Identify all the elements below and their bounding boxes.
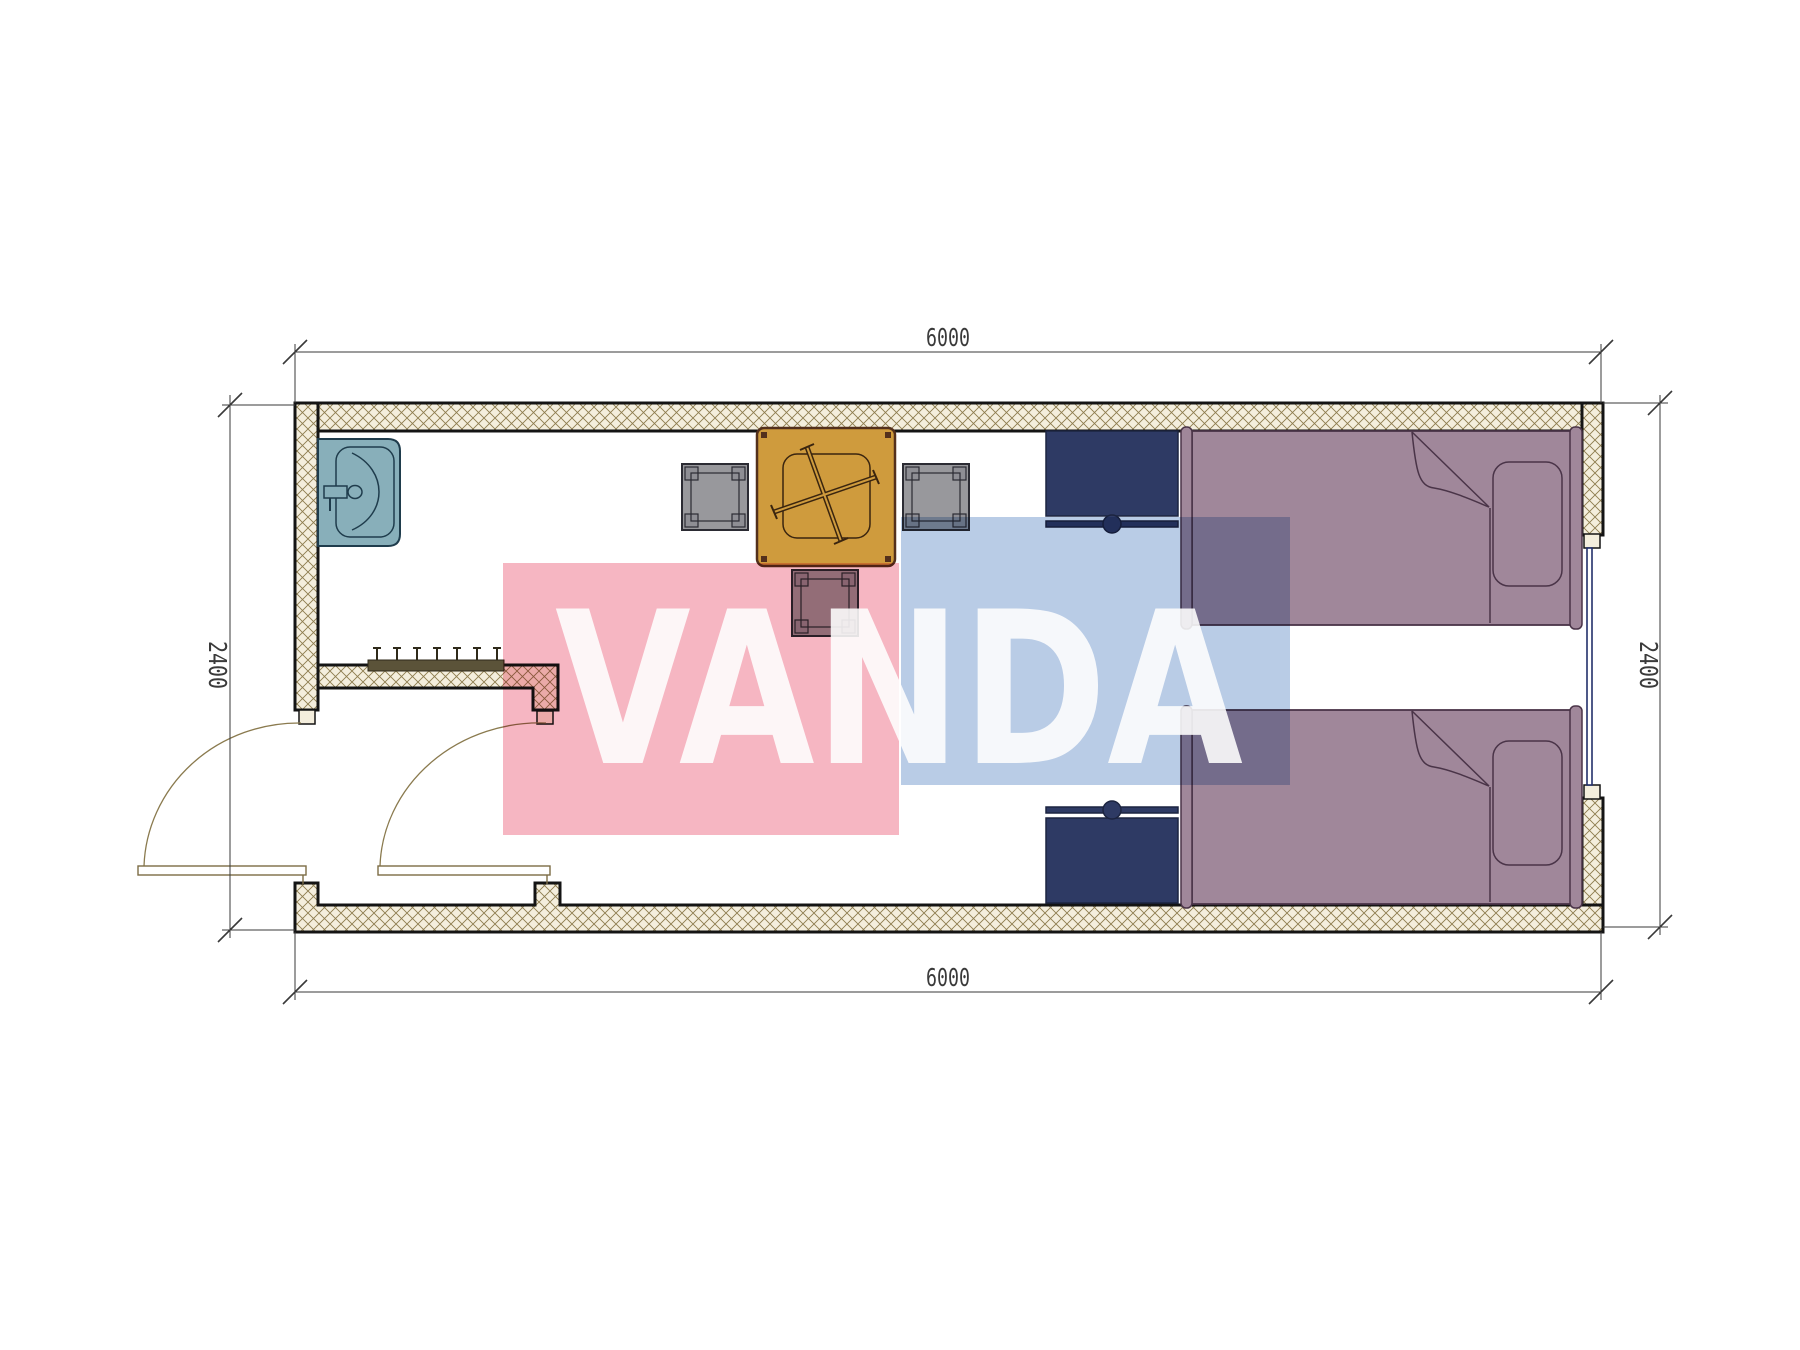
dimension-bottom: 6000 bbox=[283, 932, 1613, 1004]
dimension-right: 2400 bbox=[1603, 391, 1672, 939]
window-jamb-bottom bbox=[1584, 785, 1600, 799]
wall-left bbox=[295, 403, 318, 710]
dimension-label-right: 2400 bbox=[1634, 641, 1663, 689]
watermark-text: VANDA bbox=[555, 566, 1243, 813]
nightstand-bottom-symbol bbox=[1046, 801, 1178, 903]
coat-rack-symbol bbox=[368, 648, 504, 671]
watermark: VANDA bbox=[503, 517, 1290, 835]
chair-left-symbol bbox=[682, 464, 748, 530]
dining-table-symbol bbox=[757, 428, 895, 566]
dimension-label-left: 2400 bbox=[203, 641, 232, 689]
door-leaf-left bbox=[138, 866, 306, 875]
floor-plan-drawing: 6000 6000 2400 2400 VANDA bbox=[0, 0, 1800, 1350]
dimension-left: 2400 bbox=[203, 393, 295, 942]
dimension-label-top: 6000 bbox=[926, 323, 970, 352]
door-jamb-left bbox=[299, 710, 315, 724]
entry-doors bbox=[138, 723, 550, 884]
sink-symbol bbox=[318, 439, 400, 546]
window-jamb-top bbox=[1584, 534, 1600, 548]
wall-right-upper bbox=[1582, 403, 1603, 535]
window-symbol bbox=[1587, 548, 1592, 785]
floor-plan-page: 6000 6000 2400 2400 VANDA bbox=[0, 0, 1800, 1350]
door-swing-arc-left bbox=[144, 723, 301, 866]
dimension-top: 6000 bbox=[283, 323, 1613, 403]
dimension-label-bottom: 6000 bbox=[926, 963, 970, 992]
wall-top bbox=[295, 403, 1603, 431]
door-leaf-right bbox=[378, 866, 550, 875]
